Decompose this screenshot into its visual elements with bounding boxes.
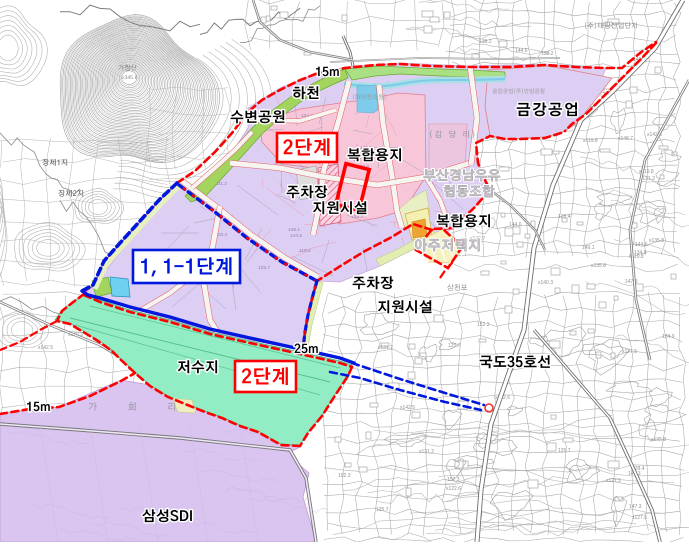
svg-text:125.7: 125.7 xyxy=(558,448,571,454)
svg-text:x135.8: x135.8 xyxy=(591,263,606,269)
svg-text:138.2: 138.2 xyxy=(479,39,492,45)
svg-text:x127.5: x127.5 xyxy=(606,478,621,484)
svg-text:x127.5: x127.5 xyxy=(632,515,647,521)
svg-text:x122.6: x122.6 xyxy=(446,486,461,492)
svg-text:x131.2: x131.2 xyxy=(378,345,393,351)
svg-text:152.3: 152.3 xyxy=(338,473,351,479)
svg-text:125.7: 125.7 xyxy=(258,265,270,271)
svg-text:x131.2: x131.2 xyxy=(419,449,434,455)
svg-text:134.9: 134.9 xyxy=(634,250,647,256)
svg-text:144.6: 144.6 xyxy=(290,233,302,239)
svg-text:144.6: 144.6 xyxy=(509,222,522,228)
svg-text:x140.3: x140.3 xyxy=(538,280,553,286)
svg-text:134.9: 134.9 xyxy=(662,334,675,340)
svg-text:147.3: 147.3 xyxy=(629,504,642,510)
svg-text:x127.5: x127.5 xyxy=(622,349,637,355)
svg-text:119.8: 119.8 xyxy=(299,248,311,254)
svg-text:138.2: 138.2 xyxy=(541,51,554,57)
svg-text:144.6: 144.6 xyxy=(635,242,648,248)
svg-text:128.4: 128.4 xyxy=(558,214,571,220)
svg-text:125.7: 125.7 xyxy=(376,507,389,513)
svg-text:152.3: 152.3 xyxy=(447,477,460,483)
svg-text:x148.7: x148.7 xyxy=(618,136,633,142)
svg-text:x119.8: x119.8 xyxy=(583,138,598,144)
svg-text:x142.5: x142.5 xyxy=(400,405,415,411)
svg-text:149.1: 149.1 xyxy=(288,227,300,233)
svg-text:144.6: 144.6 xyxy=(515,48,528,54)
svg-text:149.1: 149.1 xyxy=(582,245,595,251)
svg-text:152.3: 152.3 xyxy=(477,322,490,328)
svg-text:x135.8: x135.8 xyxy=(649,238,664,244)
svg-text:125.7: 125.7 xyxy=(448,343,461,349)
svg-text:x142.5: x142.5 xyxy=(38,345,53,351)
